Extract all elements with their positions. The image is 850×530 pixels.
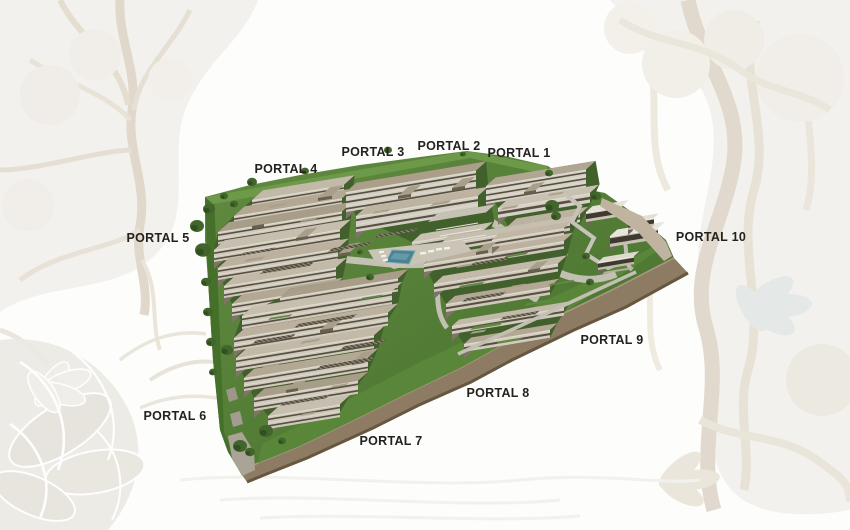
svg-text:PORTAL 6: PORTAL 6 (143, 409, 206, 423)
svg-text:PORTAL 9: PORTAL 9 (580, 333, 643, 347)
svg-text:PORTAL 10: PORTAL 10 (676, 230, 746, 244)
svg-text:PORTAL 8: PORTAL 8 (466, 386, 529, 400)
svg-text:PORTAL 5: PORTAL 5 (126, 231, 189, 245)
svg-text:PORTAL 2: PORTAL 2 (417, 139, 480, 153)
svg-text:PORTAL 1: PORTAL 1 (487, 146, 550, 160)
svg-text:PORTAL 3: PORTAL 3 (341, 145, 404, 159)
svg-text:PORTAL 7: PORTAL 7 (359, 434, 422, 448)
svg-text:PORTAL 4: PORTAL 4 (254, 162, 317, 176)
